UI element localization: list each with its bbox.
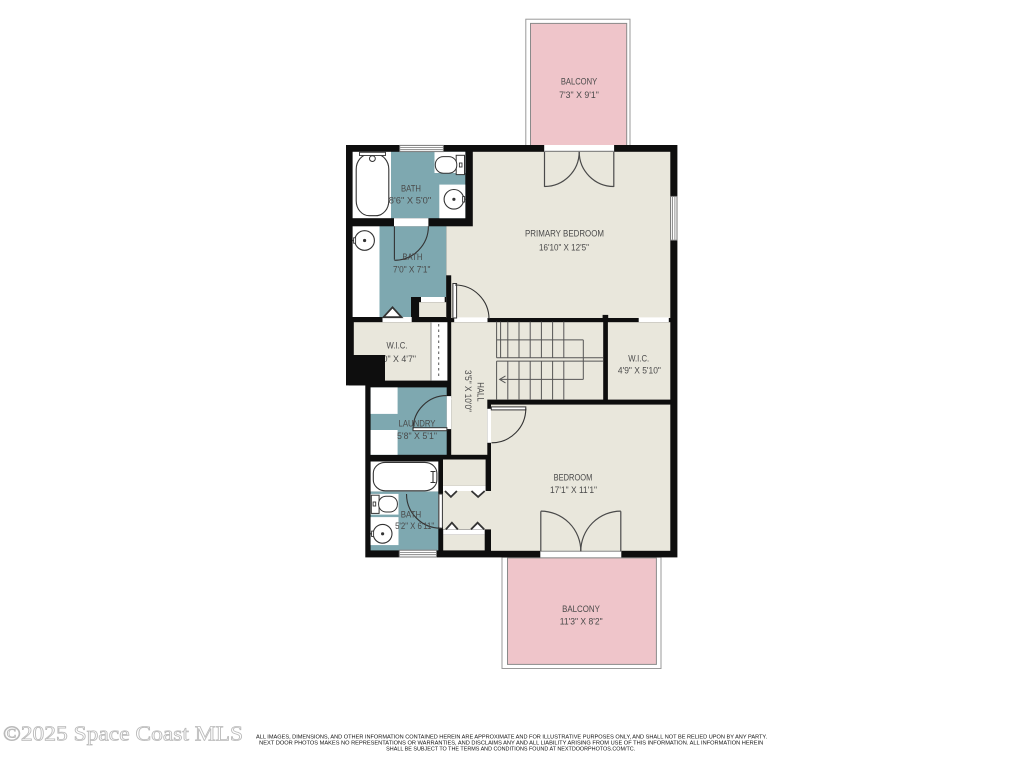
svg-text:4'9" X 5'10": 4'9" X 5'10" [618, 366, 661, 376]
svg-text:BATH: BATH [401, 509, 421, 519]
svg-text:SHALL BE SUBJECT TO THE TERMS: SHALL BE SUBJECT TO THE TERMS AND CONDIT… [386, 747, 635, 753]
svg-text:LAUNDRY: LAUNDRY [399, 419, 436, 429]
svg-text:©2025 Space Coast MLS: ©2025 Space Coast MLS [3, 722, 243, 746]
svg-text:BEDROOM: BEDROOM [554, 473, 593, 483]
svg-text:17'1" X 11'1": 17'1" X 11'1" [550, 485, 597, 495]
svg-text:16'10" X 12'5": 16'10" X 12'5" [539, 242, 589, 252]
svg-text:7'0" X 7'1": 7'0" X 7'1" [393, 264, 431, 274]
svg-text:HALL: HALL [476, 382, 486, 401]
svg-text:W.I.C.: W.I.C. [628, 353, 649, 363]
svg-text:BALCONY: BALCONY [562, 604, 600, 614]
svg-text:7'3" X 9'1": 7'3" X 9'1" [559, 90, 599, 100]
svg-text:8'6" X 5'0": 8'6" X 5'0" [389, 196, 431, 206]
svg-text:W.I.C.: W.I.C. [387, 341, 408, 351]
svg-text:ALL IMAGES, DIMENSIONS, AND OT: ALL IMAGES, DIMENSIONS, AND OTHER INFORM… [256, 734, 767, 740]
svg-text:NEXT DOOR PHOTOS MAKES NO REPR: NEXT DOOR PHOTOS MAKES NO REPRESENTATION… [259, 740, 763, 746]
svg-text:3'5" X 10'0": 3'5" X 10'0" [463, 370, 473, 412]
svg-text:BATH: BATH [401, 183, 421, 193]
svg-text:5'2" X 6'11": 5'2" X 6'11" [395, 521, 434, 531]
svg-text:11'3" X 8'2": 11'3" X 8'2" [560, 617, 603, 627]
svg-text:PRIMARY BEDROOM: PRIMARY BEDROOM [525, 228, 604, 238]
svg-text:5'8" X 5'1": 5'8" X 5'1" [397, 431, 437, 441]
svg-text:BATH: BATH [402, 252, 422, 262]
svg-text:BALCONY: BALCONY [561, 77, 597, 87]
